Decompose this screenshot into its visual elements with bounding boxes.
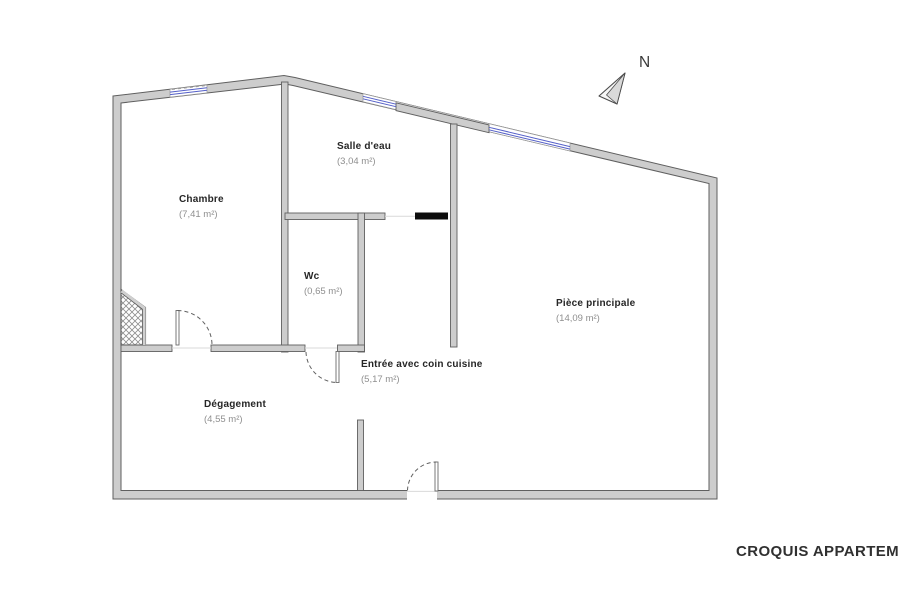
room-name: Salle d'eau <box>337 140 391 154</box>
wall-degagement-a <box>121 345 172 352</box>
north-arrow-icon <box>599 73 625 104</box>
room-label-salle-deau: Salle d'eau (3,04 m²) <box>337 140 391 169</box>
room-name: Dégagement <box>204 398 266 412</box>
floorplan-page: Chambre (7,41 m²) Salle d'eau (3,04 m²) … <box>0 0 900 600</box>
room-label-piece-principale: Pièce principale (14,09 m²) <box>556 297 635 326</box>
wall-wc-entree <box>358 213 365 352</box>
room-area: (14,09 m²) <box>556 312 635 326</box>
room-area: (3,04 m²) <box>337 155 391 169</box>
door-arc <box>408 462 437 491</box>
door-leaf <box>176 311 179 346</box>
hatched-duct <box>121 290 146 346</box>
wall-salledeau-wc <box>285 213 385 220</box>
room-area: (7,41 m²) <box>179 208 224 222</box>
room-label-chambre: Chambre (7,41 m²) <box>179 193 224 222</box>
door-arc <box>178 311 213 346</box>
floorplan-drawing <box>0 0 900 600</box>
door-arc <box>306 352 338 383</box>
room-label-degagement: Dégagement (4,55 m²) <box>204 398 266 427</box>
room-name: Wc <box>304 270 343 284</box>
room-name: Entrée avec coin cuisine <box>361 358 483 372</box>
wall-slab <box>396 103 489 133</box>
door-leaf <box>336 352 339 383</box>
room-area: (0,65 m²) <box>304 285 343 299</box>
wall-entree-piece <box>451 124 458 347</box>
interior-walls <box>121 82 457 491</box>
plan-title: CROQUIS APPARTEMENT <box>736 543 900 560</box>
wall-degagement-c <box>338 345 365 352</box>
outer-walls <box>113 76 717 500</box>
sliding-door-panel <box>415 213 448 220</box>
door-entrance <box>408 462 439 491</box>
door-chambre <box>176 311 212 346</box>
door-leaf <box>435 462 438 491</box>
room-label-wc: Wc (0,65 m²) <box>304 270 343 299</box>
room-area: (4,55 m²) <box>204 413 266 427</box>
thresholds <box>172 216 437 491</box>
north-label: N <box>639 54 650 72</box>
room-area: (5,17 m²) <box>361 373 483 387</box>
room-name: Pièce principale <box>556 297 635 311</box>
room-label-entree: Entrée avec coin cuisine (5,17 m²) <box>361 358 483 387</box>
door-wc <box>306 352 339 383</box>
room-name: Chambre <box>179 193 224 207</box>
wall-degagement-b <box>211 345 305 352</box>
wall-entree-stub <box>358 420 364 491</box>
